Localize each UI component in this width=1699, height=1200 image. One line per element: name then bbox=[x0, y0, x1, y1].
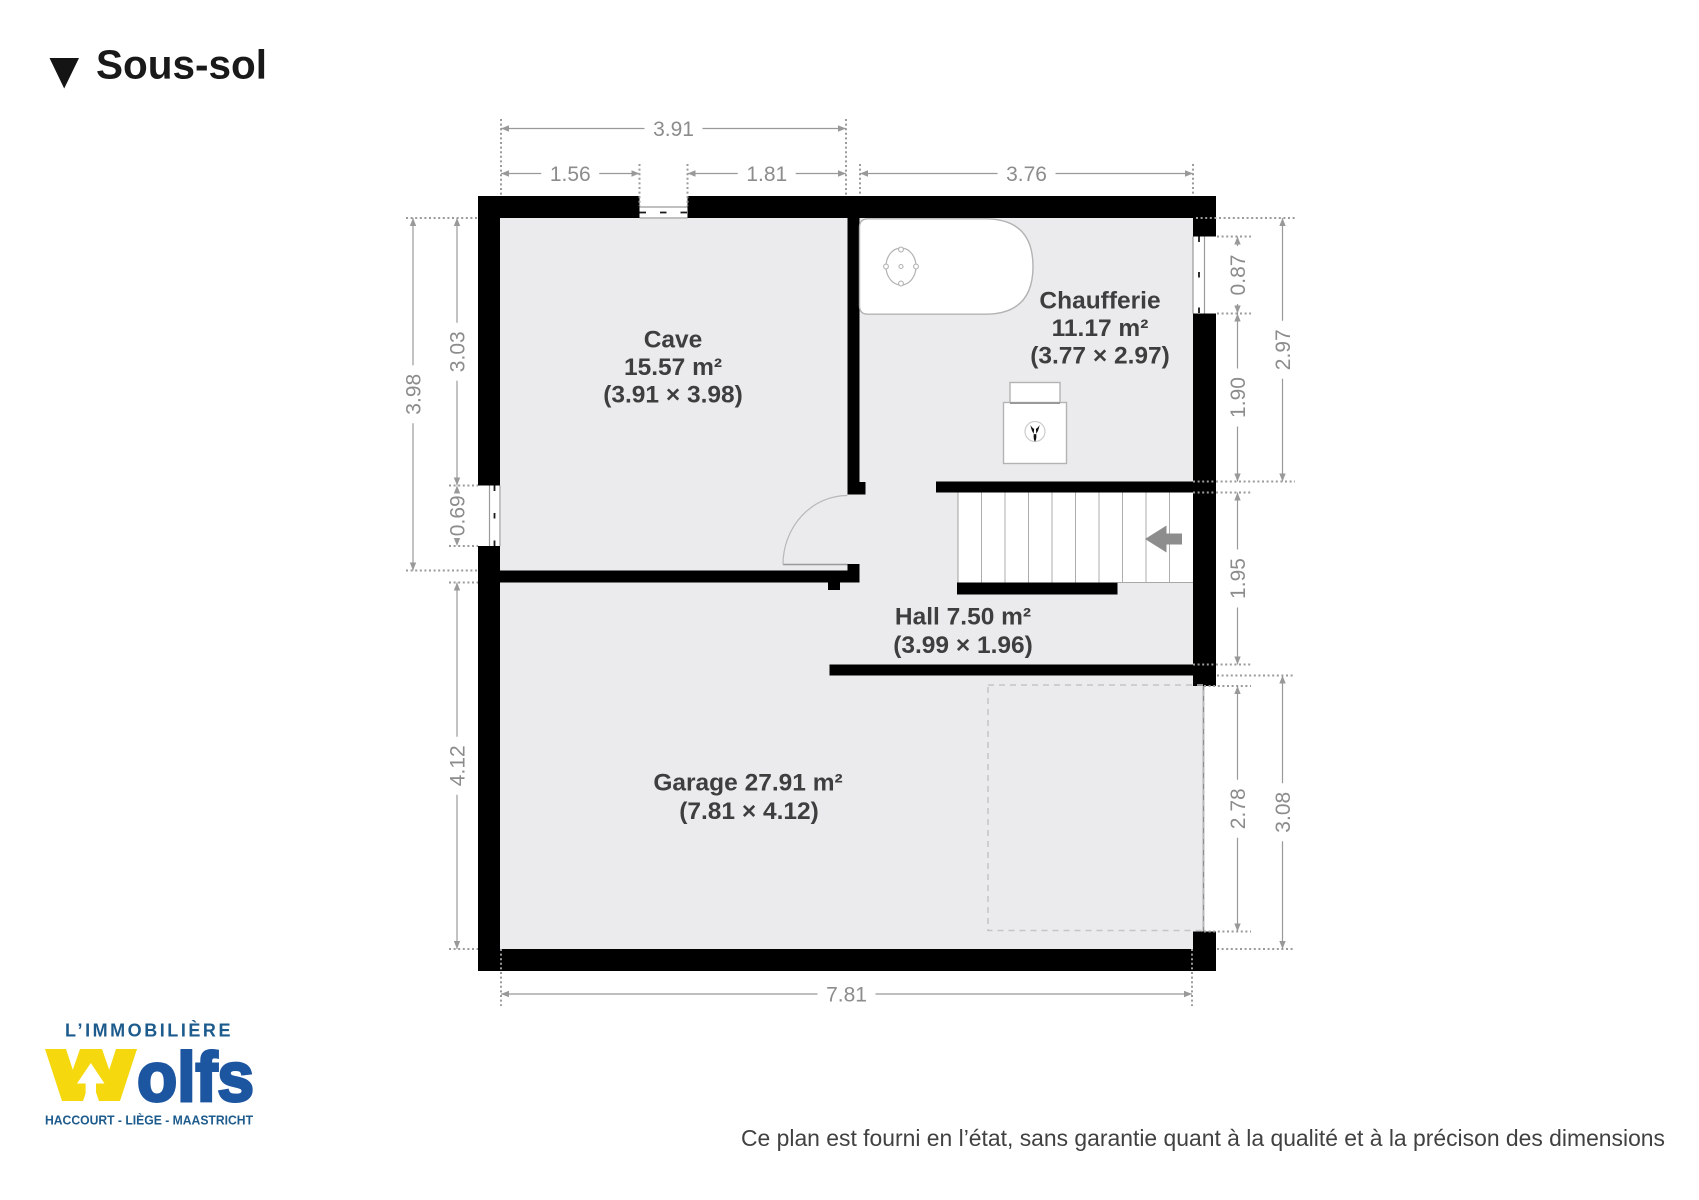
svg-text:olfs: olfs bbox=[137, 1038, 254, 1116]
svg-text:11.17 m²: 11.17 m² bbox=[1052, 315, 1149, 342]
svg-text:(3.77 × 2.97): (3.77 × 2.97) bbox=[1030, 343, 1170, 370]
svg-text:Sous-sol: Sous-sol bbox=[96, 42, 267, 88]
svg-text:Garage 27.91 m²: Garage 27.91 m² bbox=[653, 770, 842, 797]
svg-text:4.12: 4.12 bbox=[447, 745, 470, 786]
svg-text:Hall 7.50 m²: Hall 7.50 m² bbox=[895, 604, 1031, 631]
svg-text:7.81: 7.81 bbox=[826, 984, 867, 1007]
svg-text:3.03: 3.03 bbox=[447, 331, 470, 372]
svg-text:(3.99 × 1.96): (3.99 × 1.96) bbox=[893, 632, 1033, 659]
svg-text:2.78: 2.78 bbox=[1227, 788, 1250, 829]
svg-text:(3.91 × 3.98): (3.91 × 3.98) bbox=[603, 382, 743, 409]
svg-text:0.69: 0.69 bbox=[447, 495, 470, 536]
svg-text:1.95: 1.95 bbox=[1227, 558, 1250, 599]
svg-text:0.87: 0.87 bbox=[1227, 255, 1250, 296]
svg-text:1.81: 1.81 bbox=[746, 163, 787, 186]
svg-text:Cave: Cave bbox=[644, 327, 703, 354]
svg-text:Chaufferie: Chaufferie bbox=[1039, 288, 1160, 315]
svg-text:(7.81 × 4.12): (7.81 × 4.12) bbox=[679, 798, 819, 825]
svg-text:1.90: 1.90 bbox=[1227, 377, 1250, 418]
svg-text:15.57 m²: 15.57 m² bbox=[624, 354, 722, 381]
svg-text:3.08: 3.08 bbox=[1272, 792, 1295, 833]
svg-text:3.98: 3.98 bbox=[403, 374, 426, 415]
svg-text:3.91: 3.91 bbox=[653, 118, 694, 141]
svg-text:HACCOURT - LIÈGE - MAASTRICHT: HACCOURT - LIÈGE - MAASTRICHT bbox=[45, 1113, 253, 1128]
svg-text:1.56: 1.56 bbox=[550, 163, 591, 186]
svg-text:2.97: 2.97 bbox=[1272, 329, 1295, 370]
svg-text:Ce plan est fourni en l’état,: Ce plan est fourni en l’état, sans garan… bbox=[741, 1125, 1665, 1151]
svg-text:3.76: 3.76 bbox=[1006, 163, 1047, 186]
